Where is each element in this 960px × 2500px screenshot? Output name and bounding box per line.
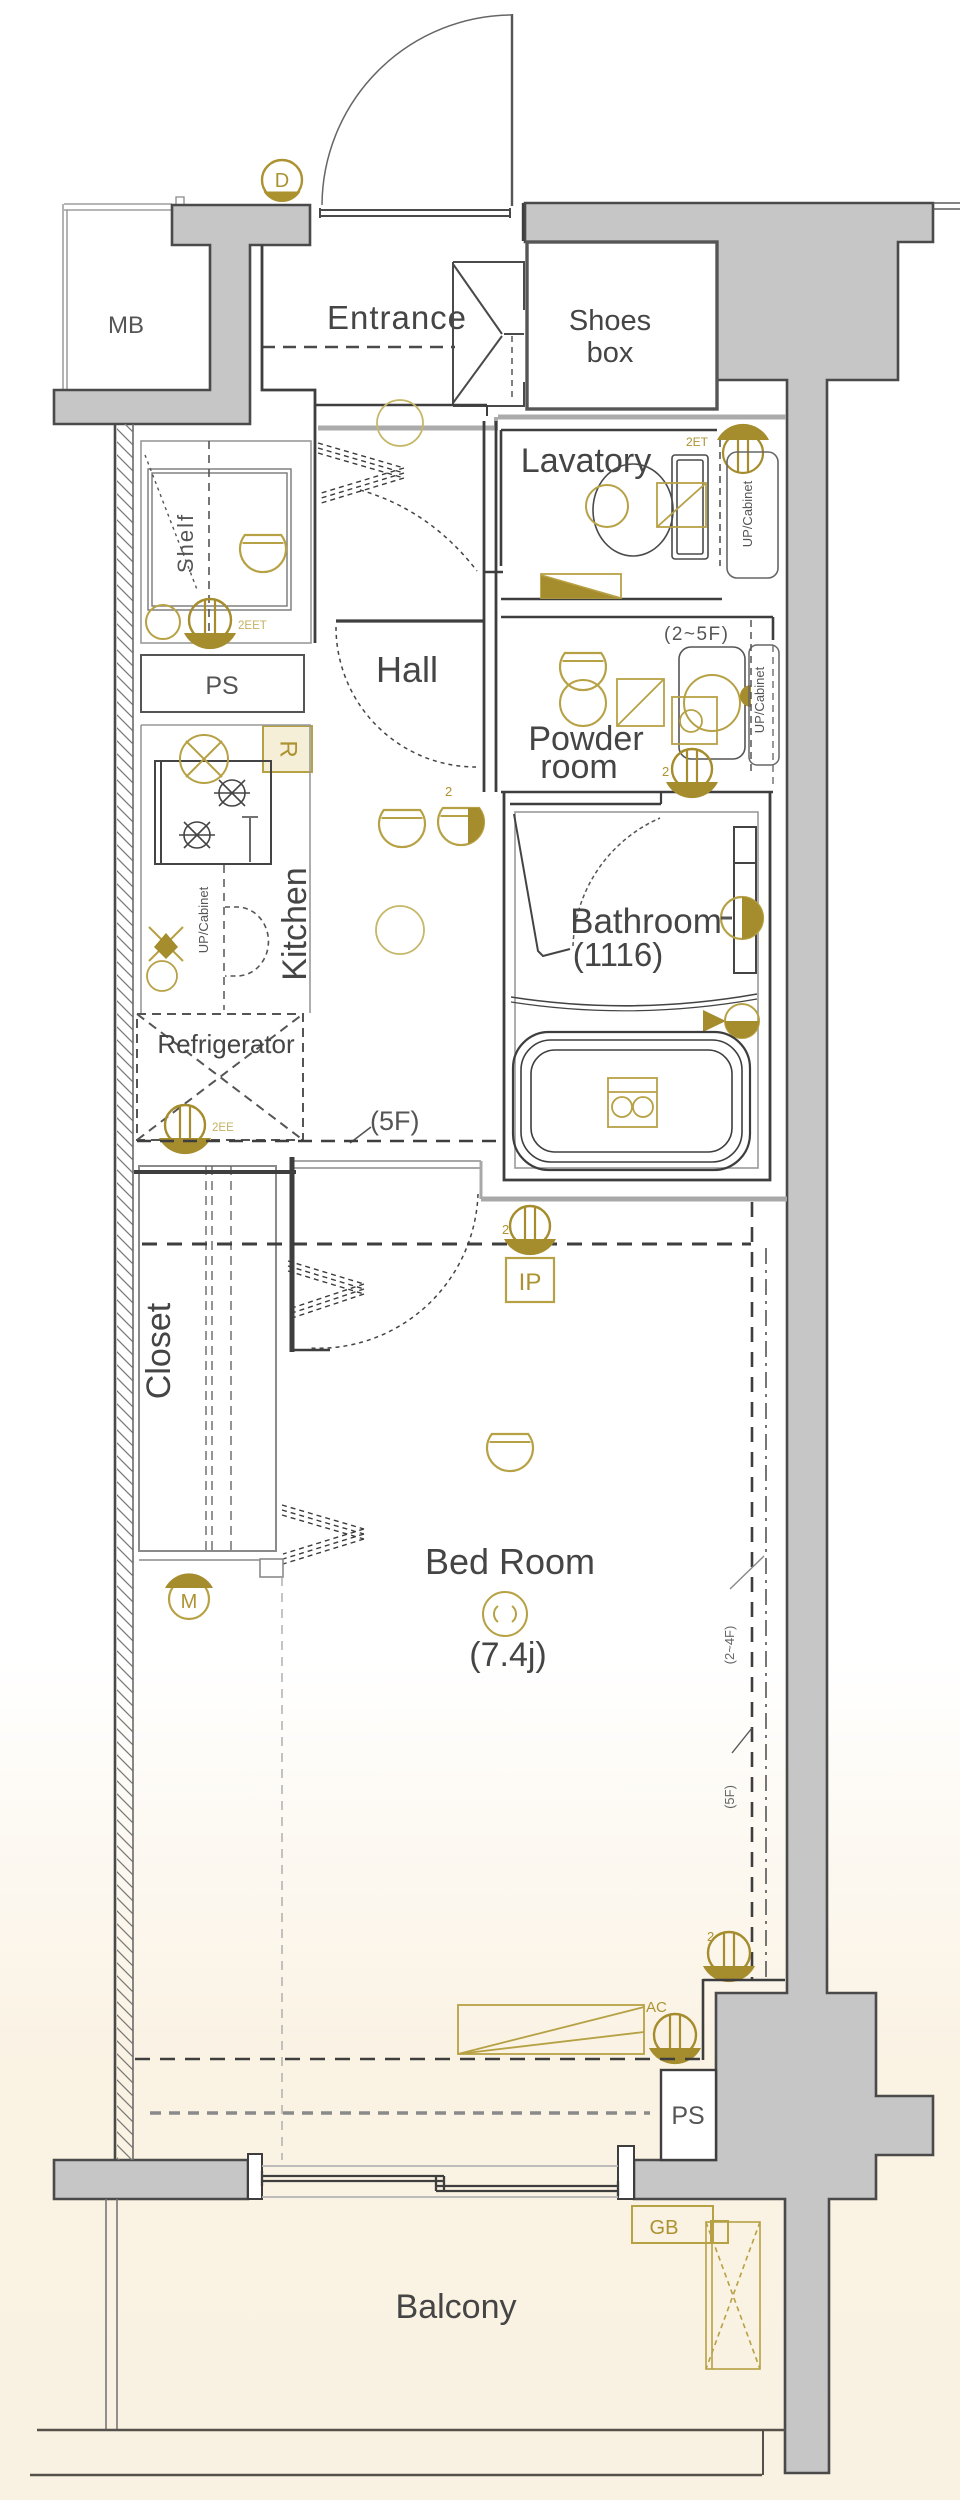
svg-text:Shoes: Shoes <box>569 305 651 337</box>
svg-text:2ET: 2ET <box>686 435 709 449</box>
svg-text:GB: GB <box>650 2217 679 2239</box>
svg-text:IP: IP <box>519 1269 542 1296</box>
svg-text:UP/Cabinet: UP/Cabinet <box>752 666 767 733</box>
svg-text:Lavatory: Lavatory <box>521 442 651 480</box>
svg-text:Shelf: Shelf <box>173 513 198 573</box>
svg-text:2: 2 <box>707 1929 714 1944</box>
svg-text:Bed Room: Bed Room <box>425 1541 595 1582</box>
svg-text:2EET: 2EET <box>238 620 267 632</box>
svg-text:(1116): (1116) <box>573 936 664 973</box>
svg-text:PS: PS <box>671 2102 704 2130</box>
svg-text:PS: PS <box>205 672 238 700</box>
svg-text:M: M <box>181 1591 198 1613</box>
svg-text:R: R <box>275 740 302 757</box>
svg-text:box: box <box>587 337 634 369</box>
svg-text:(5F): (5F) <box>370 1106 420 1136</box>
svg-text:Hall: Hall <box>376 649 438 690</box>
svg-text:Balcony: Balcony <box>396 2288 517 2326</box>
svg-text:2: 2 <box>445 784 452 799</box>
svg-text:room: room <box>540 748 617 786</box>
svg-text:(7.4j): (7.4j) <box>469 1636 546 1674</box>
svg-text:Kitchen: Kitchen <box>276 867 314 980</box>
svg-text:UP/Cabinet: UP/Cabinet <box>196 886 211 953</box>
svg-text:Refrigerator: Refrigerator <box>157 1029 295 1059</box>
svg-text:UP/Cabinet: UP/Cabinet <box>740 480 755 547</box>
svg-text:(2~5F): (2~5F) <box>664 624 730 645</box>
svg-text:2EE: 2EE <box>212 1122 234 1134</box>
svg-text:D: D <box>275 170 289 192</box>
svg-text:MB: MB <box>108 312 144 339</box>
svg-text:(5F): (5F) <box>722 1785 737 1809</box>
svg-text:Closet: Closet <box>140 1302 178 1399</box>
svg-text:AC: AC <box>646 1999 667 2016</box>
svg-text:(2~4F): (2~4F) <box>722 1626 737 1665</box>
svg-text:2: 2 <box>662 764 669 779</box>
svg-text:2: 2 <box>502 1222 509 1237</box>
svg-text:Entrance: Entrance <box>327 299 467 336</box>
